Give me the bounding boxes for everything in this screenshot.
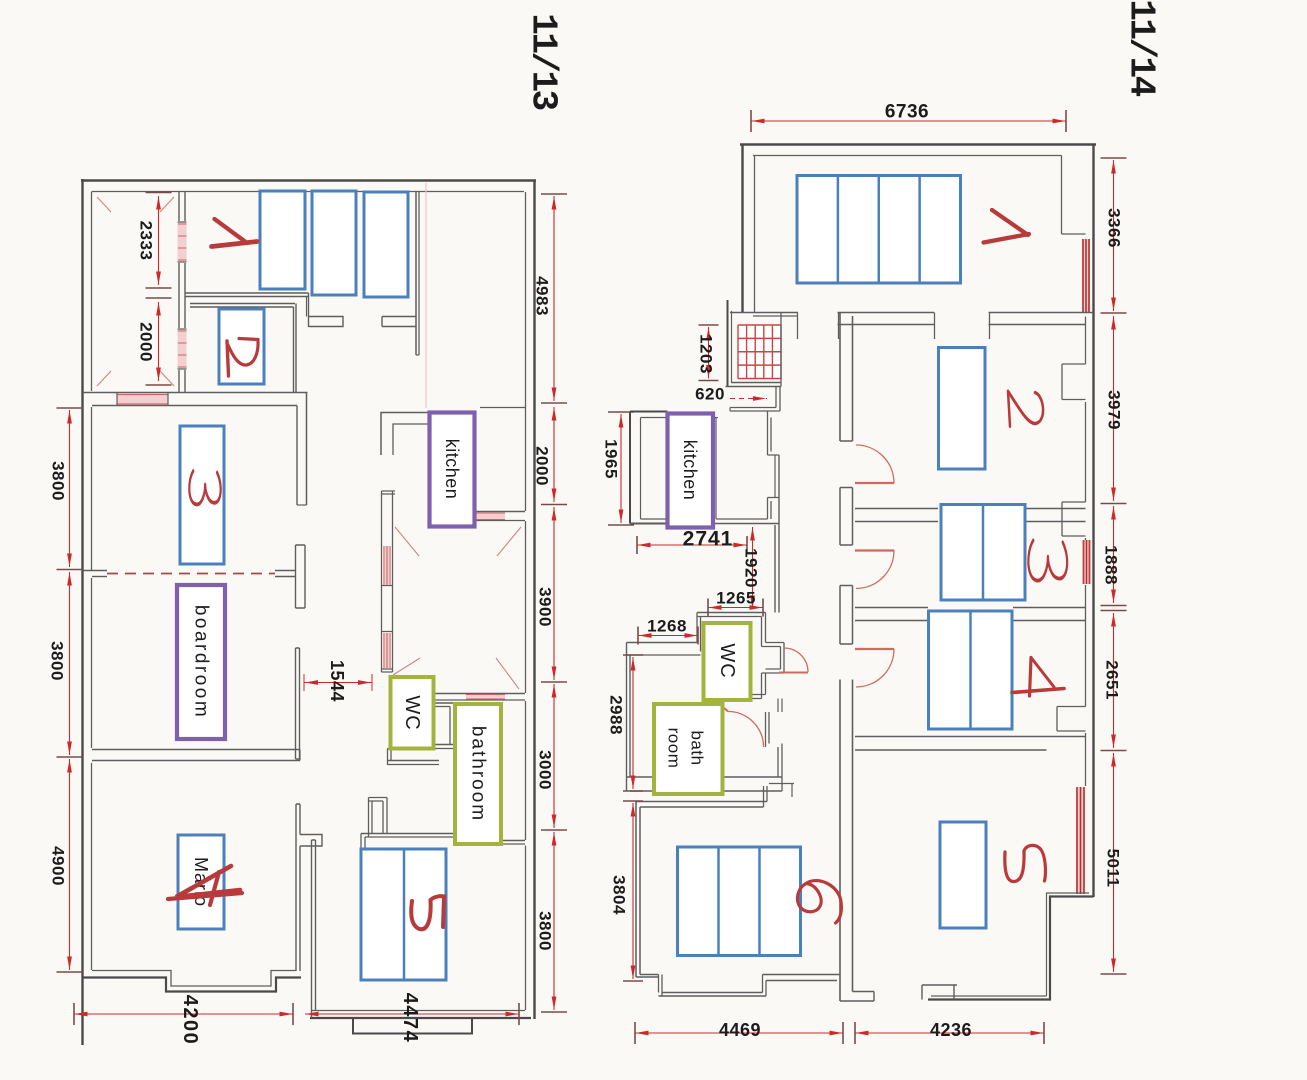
svg-text:kitchen: kitchen [680,440,700,501]
svg-text:1268: 1268 [647,617,687,636]
svg-text:11/14: 11/14 [1121,0,1162,97]
svg-text:1888: 1888 [1102,545,1121,585]
svg-text:2333: 2333 [137,221,156,261]
svg-text:WC: WC [401,695,423,730]
svg-text:boardroom: boardroom [191,605,212,719]
svg-text:11/13: 11/13 [523,13,564,109]
svg-text:620: 620 [695,385,725,404]
svg-text:bath: bath [688,730,707,765]
svg-text:1544: 1544 [327,660,347,702]
svg-text:4200: 4200 [179,995,201,1046]
svg-text:5011: 5011 [1104,849,1123,888]
svg-text:2988: 2988 [607,695,626,735]
svg-text:bathroom: bathroom [468,726,489,822]
svg-text:3900: 3900 [536,587,555,627]
svg-text:3800: 3800 [49,461,68,501]
svg-text:3804: 3804 [610,875,629,915]
svg-text:4983: 4983 [533,276,552,316]
svg-text:1920: 1920 [742,548,761,588]
svg-text:1265: 1265 [716,589,756,608]
svg-text:WC: WC [716,643,738,678]
svg-text:2741: 2741 [683,528,734,551]
svg-text:2000: 2000 [137,322,156,362]
svg-text:6736: 6736 [885,102,929,123]
svg-text:room: room [665,728,684,769]
svg-text:4469: 4469 [719,1020,761,1040]
svg-text:1203: 1203 [697,334,716,374]
svg-text:3800: 3800 [536,911,555,951]
svg-text:2651: 2651 [1103,660,1122,700]
svg-text:4474: 4474 [399,993,421,1044]
svg-text:4900: 4900 [49,846,68,886]
svg-text:3979: 3979 [1105,390,1124,430]
svg-text:2000: 2000 [533,446,552,486]
svg-text:3366: 3366 [1105,208,1124,248]
svg-text:4236: 4236 [930,1020,972,1040]
svg-text:3000: 3000 [536,750,555,790]
svg-text:kitchen: kitchen [442,439,462,500]
svg-text:3800: 3800 [48,641,67,681]
svg-text:1965: 1965 [602,439,621,479]
